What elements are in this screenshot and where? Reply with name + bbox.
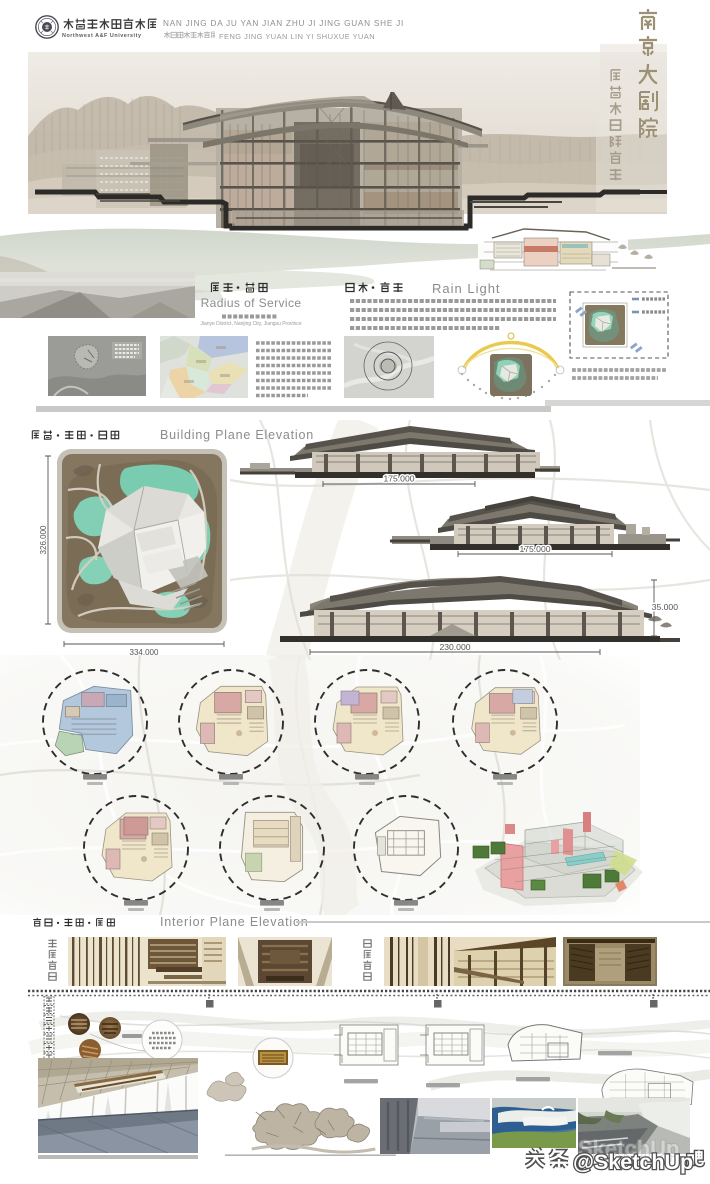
svg-text:@SketchUp: @SketchUp — [573, 1150, 693, 1174]
svg-text:326.000: 326.000 — [39, 525, 48, 554]
svg-text:175.000: 175.000 — [519, 544, 550, 554]
svg-text:175.000: 175.000 — [383, 474, 414, 484]
svg-text:230.000: 230.000 — [439, 642, 470, 652]
svg-text:35.000: 35.000 — [652, 602, 679, 612]
